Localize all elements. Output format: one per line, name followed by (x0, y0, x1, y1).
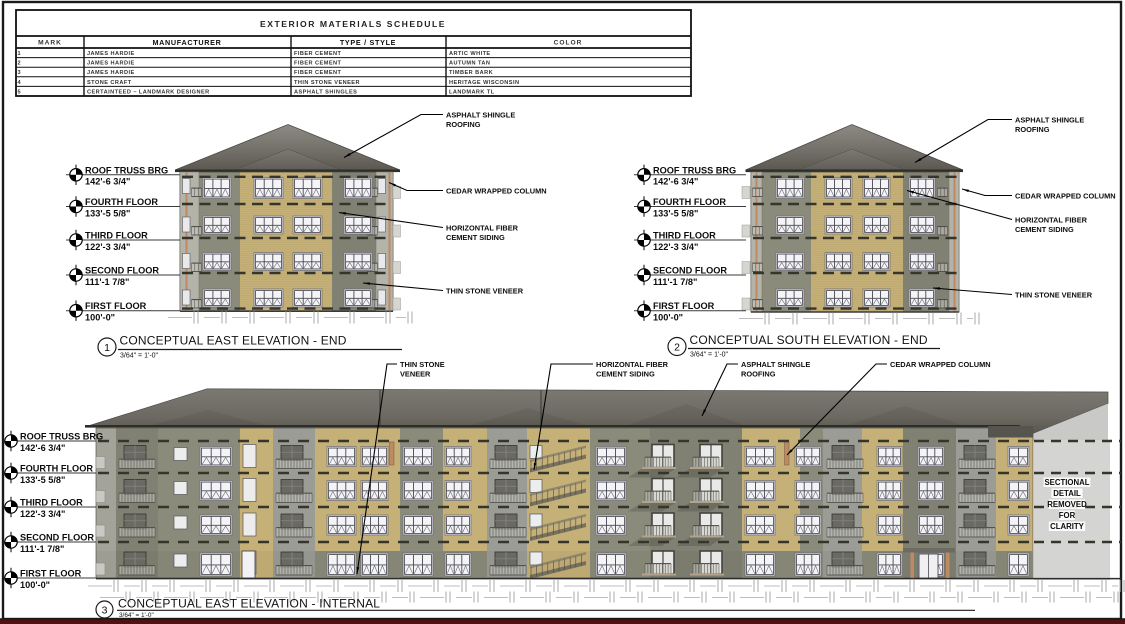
svg-text:CEDAR WRAPPED COLUMN: CEDAR WRAPPED COLUMN (446, 187, 547, 196)
svg-text:THIRD FLOOR: THIRD FLOOR (85, 231, 148, 241)
svg-text:MANUFACTURER: MANUFACTURER (152, 38, 221, 47)
svg-text:LANDMARK TL: LANDMARK TL (449, 89, 495, 95)
svg-text:111'-1 7/8": 111'-1 7/8" (20, 544, 64, 554)
svg-text:2: 2 (674, 342, 680, 354)
svg-text:122'-3 3/4": 122'-3 3/4" (85, 242, 130, 252)
svg-text:SECOND FLOOR: SECOND FLOOR (85, 266, 159, 276)
svg-text:EXTERIOR MATERIALS SCHEDULE: EXTERIOR MATERIALS SCHEDULE (260, 19, 446, 29)
svg-text:THIN STONE: THIN STONE (400, 360, 445, 369)
svg-text:122'-3 3/4": 122'-3 3/4" (20, 509, 65, 519)
svg-text:FIBER CEMENT: FIBER CEMENT (294, 70, 341, 76)
svg-text:3/64" = 1'-0": 3/64" = 1'-0" (119, 612, 154, 619)
svg-text:ASPHALT SHINGLE: ASPHALT SHINGLE (741, 360, 810, 369)
svg-text:THIRD FLOOR: THIRD FLOOR (20, 498, 83, 508)
svg-text:THIN STONE VENEER: THIN STONE VENEER (446, 287, 524, 296)
svg-text:111'-1 7/8": 111'-1 7/8" (85, 277, 129, 287)
svg-text:3: 3 (18, 70, 21, 76)
svg-text:SECOND FLOOR: SECOND FLOOR (20, 533, 94, 543)
svg-text:CEDAR WRAPPED COLUMN: CEDAR WRAPPED COLUMN (1015, 192, 1116, 201)
svg-text:2: 2 (18, 61, 21, 67)
svg-text:CLARITY: CLARITY (1050, 522, 1085, 531)
svg-text:FOURTH FLOOR: FOURTH FLOOR (653, 197, 726, 207)
svg-text:CONCEPTUAL EAST ELEVATION - EN: CONCEPTUAL EAST ELEVATION - END (120, 334, 347, 348)
svg-text:ROOF TRUSS BRG: ROOF TRUSS BRG (85, 165, 168, 175)
svg-text:ROOF TRUSS BRG: ROOF TRUSS BRG (653, 165, 736, 175)
svg-text:100'-0": 100'-0" (20, 580, 50, 590)
svg-text:111'-1 7/8": 111'-1 7/8" (653, 277, 697, 287)
svg-text:FIRST FLOOR: FIRST FLOOR (20, 569, 82, 579)
svg-text:3/64" = 1'-0": 3/64" = 1'-0" (690, 352, 729, 359)
svg-text:ROOFING: ROOFING (446, 120, 481, 129)
svg-text:TIMBER BARK: TIMBER BARK (449, 70, 493, 76)
svg-text:3/64" = 1'-0": 3/64" = 1'-0" (120, 353, 159, 360)
svg-text:142'-6 3/4": 142'-6 3/4" (653, 177, 698, 187)
svg-text:3: 3 (102, 605, 108, 617)
svg-text:HORIZONTAL FIBER: HORIZONTAL FIBER (446, 224, 519, 233)
svg-text:REMOVED: REMOVED (1047, 500, 1087, 509)
svg-text:FIBER CEMENT: FIBER CEMENT (294, 51, 341, 57)
svg-text:ASPHALT SHINGLES: ASPHALT SHINGLES (294, 89, 357, 95)
svg-text:CEMENT SIDING: CEMENT SIDING (1015, 225, 1074, 234)
svg-text:AUTUMN TAN: AUTUMN TAN (449, 61, 490, 67)
svg-text:FIBER CEMENT: FIBER CEMENT (294, 61, 341, 67)
svg-text:JAMES HARDIE: JAMES HARDIE (87, 61, 135, 67)
svg-text:COLOR: COLOR (554, 40, 583, 47)
svg-text:CEMENT SIDING: CEMENT SIDING (446, 233, 505, 242)
svg-text:100'-0": 100'-0" (653, 313, 683, 323)
svg-text:CEDAR WRAPPED COLUMN: CEDAR WRAPPED COLUMN (890, 360, 991, 369)
svg-text:ROOFING: ROOFING (741, 370, 776, 379)
svg-text:4: 4 (18, 80, 22, 86)
svg-text:JAMES HARDIE: JAMES HARDIE (87, 51, 135, 57)
svg-text:1: 1 (104, 342, 110, 354)
svg-text:CONCEPTUAL EAST ELEVATION - IN: CONCEPTUAL EAST ELEVATION - INTERNAL (118, 597, 380, 611)
svg-text:5: 5 (18, 89, 21, 95)
svg-text:ASPHALT SHINGLE: ASPHALT SHINGLE (1015, 116, 1084, 125)
svg-text:HORIZONTAL FIBER: HORIZONTAL FIBER (1015, 216, 1088, 225)
svg-text:FOURTH FLOOR: FOURTH FLOOR (20, 464, 93, 474)
svg-text:FOURTH FLOOR: FOURTH FLOOR (85, 197, 158, 207)
svg-text:FIRST FLOOR: FIRST FLOOR (85, 301, 147, 311)
svg-text:ROOF TRUSS BRG: ROOF TRUSS BRG (20, 432, 103, 442)
svg-text:MARK: MARK (38, 40, 62, 47)
svg-text:142'-6 3/4": 142'-6 3/4" (20, 443, 65, 453)
svg-text:SECOND FLOOR: SECOND FLOOR (653, 266, 727, 276)
svg-text:133'-5 5/8": 133'-5 5/8" (653, 208, 698, 218)
svg-text:SECTIONAL: SECTIONAL (1044, 478, 1089, 487)
svg-text:ASPHALT SHINGLE: ASPHALT SHINGLE (446, 111, 515, 120)
svg-text:JAMES HARDIE: JAMES HARDIE (87, 70, 135, 76)
svg-text:DETAIL: DETAIL (1053, 489, 1081, 498)
svg-text:THIN STONE VENEER: THIN STONE VENEER (294, 80, 360, 86)
svg-text:THIN STONE VENEER: THIN STONE VENEER (1015, 291, 1093, 300)
svg-text:VENEER: VENEER (400, 370, 431, 379)
svg-text:FIRST FLOOR: FIRST FLOOR (653, 301, 715, 311)
svg-text:THIRD FLOOR: THIRD FLOOR (653, 231, 716, 241)
svg-text:1: 1 (18, 51, 21, 57)
svg-text:133'-5 5/8": 133'-5 5/8" (20, 475, 65, 485)
svg-text:122'-3 3/4": 122'-3 3/4" (653, 242, 698, 252)
svg-text:142'-6 3/4": 142'-6 3/4" (85, 177, 130, 187)
svg-text:CEMENT SIDING: CEMENT SIDING (596, 370, 655, 379)
svg-text:HORIZONTAL FIBER: HORIZONTAL FIBER (596, 360, 669, 369)
svg-text:100'-0": 100'-0" (85, 313, 115, 323)
svg-text:CERTAINTEED – LANDMARK DESIGNE: CERTAINTEED – LANDMARK DESIGNER (87, 89, 210, 95)
svg-text:133'-5 5/8": 133'-5 5/8" (85, 208, 130, 218)
svg-text:STONE CRAFT: STONE CRAFT (87, 80, 132, 86)
svg-text:TYPE / STYLE: TYPE / STYLE (340, 38, 396, 47)
svg-text:CONCEPTUAL SOUTH ELEVATION - E: CONCEPTUAL SOUTH ELEVATION - END (690, 333, 928, 347)
svg-text:ARTIC WHITE: ARTIC WHITE (449, 51, 491, 57)
svg-text:ROOFING: ROOFING (1015, 125, 1050, 134)
svg-text:FOR: FOR (1059, 511, 1076, 520)
svg-text:HERITAGE WISCONSIN: HERITAGE WISCONSIN (449, 80, 519, 86)
